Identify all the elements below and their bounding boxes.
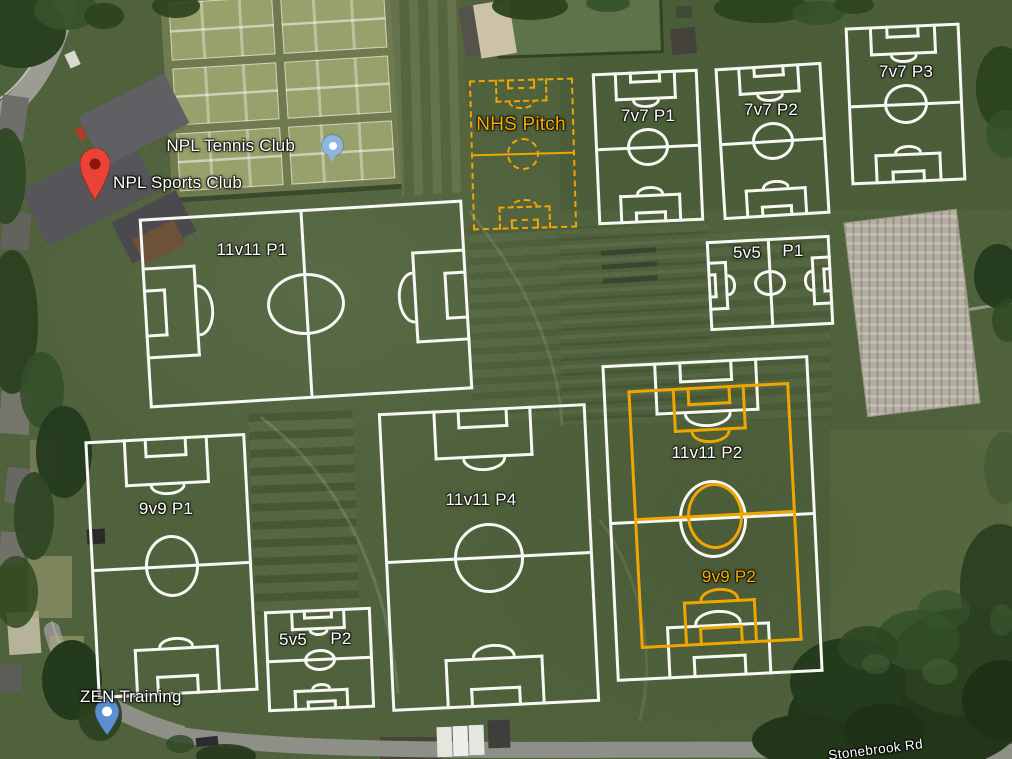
pitch-7v7-p1[interactable]	[592, 69, 705, 225]
goal-box	[456, 407, 507, 429]
goal-box	[752, 64, 785, 78]
pitch-7v7-p2[interactable]	[714, 62, 830, 220]
goal-box	[443, 271, 469, 320]
pitch-label-nhs-pitch: NHS Pitch	[476, 114, 565, 136]
goal-box	[306, 699, 337, 710]
tree-cluster	[918, 590, 970, 630]
goal-box	[143, 436, 187, 458]
centre-circle	[143, 534, 200, 599]
marker-zen-training[interactable]: ZEN Training	[95, 699, 119, 740]
pitch-nhs-pitch[interactable]	[469, 78, 577, 231]
pitch-label-11v11-p4: 11v11 P4	[446, 490, 517, 510]
goal-box	[686, 385, 731, 406]
pitch-label-11v11-p1: 11v11 P1	[217, 240, 288, 260]
centre-circle	[883, 83, 929, 125]
marker-npl-sports-club[interactable]: NPL Sports Club	[80, 148, 110, 205]
goal-box	[143, 288, 169, 337]
tree-cluster	[84, 3, 124, 29]
pitch-label-5v5-p2-0: 5v5	[279, 630, 307, 650]
tree-cluster	[0, 556, 38, 628]
goal-box	[692, 654, 747, 679]
tree-cluster	[586, 0, 630, 12]
centre-circle	[452, 521, 525, 594]
goal-box	[511, 219, 539, 230]
pitch-11v11-p1[interactable]	[139, 200, 474, 409]
centre-circle	[685, 481, 744, 550]
pitch-label-7v7-p1: 7v7 P1	[621, 106, 675, 126]
marker-label: NPL Sports Club	[113, 173, 242, 193]
pitch-label-9v9-p2: 9v9 P2	[702, 567, 756, 587]
tree-cluster	[14, 472, 54, 560]
goal-box	[507, 79, 535, 90]
pitch-label-5v5-p2-1: P2	[330, 629, 351, 649]
pitch-label-7v7-p2: 7v7 P2	[744, 100, 798, 120]
centre-circle	[626, 127, 670, 167]
tree-cluster	[922, 659, 958, 685]
pitch-label-5v5-p1-0: 5v5	[733, 243, 761, 263]
goal-box	[635, 210, 667, 223]
pitch-11v11-p4[interactable]	[378, 403, 600, 712]
goal-box	[760, 204, 793, 218]
marker-label: NPL Tennis Club	[166, 136, 295, 156]
centre-circle	[753, 269, 786, 297]
pitch-label-11v11-p2: 11v11 P2	[672, 443, 743, 463]
tree-cluster	[166, 735, 194, 753]
pitch-5v5-p2[interactable]	[264, 607, 375, 713]
tree-cluster	[492, 0, 568, 20]
pitch-9v9-p2[interactable]	[627, 382, 802, 649]
centre-circle	[265, 271, 347, 338]
goal-box	[699, 625, 744, 646]
goal-box	[470, 686, 521, 708]
goal-box	[678, 359, 733, 384]
pitch-label-5v5-p1-1: P1	[782, 241, 803, 261]
poi-dot-icon	[322, 135, 343, 156]
red-pin-icon	[80, 148, 110, 200]
map-canvas[interactable]: 11v11 P1NHS Pitch7v7 P17v7 P27v7 P35v5P1…	[0, 0, 1012, 759]
tree-cluster	[196, 744, 256, 759]
goal-box	[822, 267, 832, 293]
goal-box	[707, 273, 717, 299]
centre-circle	[507, 138, 540, 171]
pitch-9v9-p1[interactable]	[84, 433, 258, 699]
centre-circle	[303, 648, 336, 671]
centre-circle	[750, 121, 794, 161]
pitch-7v7-p3[interactable]	[845, 23, 967, 186]
tree-cluster	[152, 0, 200, 18]
pitch-label-9v9-p1: 9v9 P1	[139, 499, 193, 519]
tree-cluster	[984, 432, 1012, 504]
goal-box	[885, 24, 920, 39]
marker-label: ZEN Training	[80, 687, 182, 707]
pitch-5v5-p1[interactable]	[706, 235, 835, 331]
tree-cluster	[0, 128, 26, 224]
pitch-label-7v7-p3: 7v7 P3	[879, 62, 933, 82]
tree-cluster	[862, 654, 890, 674]
goal-box	[891, 169, 926, 184]
goal-box	[629, 70, 661, 83]
goal-box	[302, 608, 333, 619]
